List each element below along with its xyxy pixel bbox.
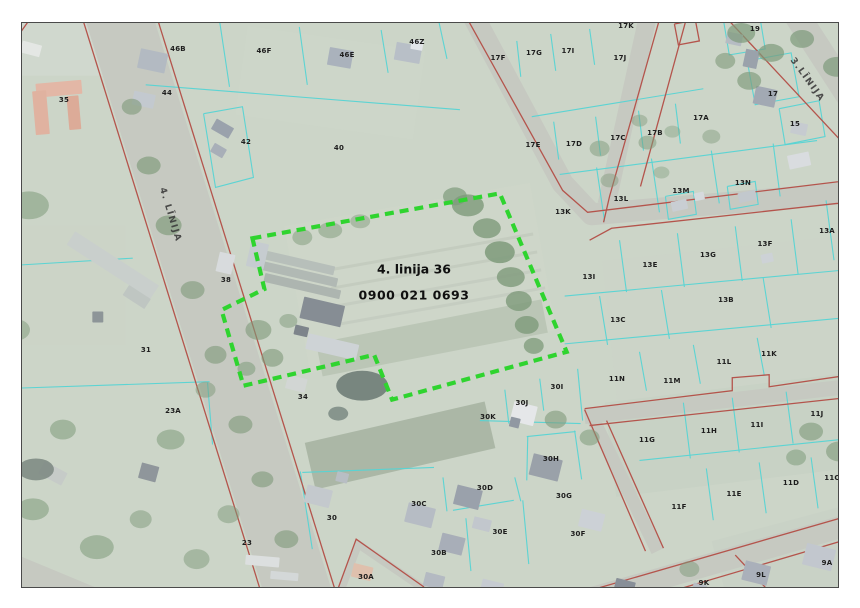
parcel-label-9A: 9A	[822, 559, 833, 567]
parcel-label-42: 42	[241, 138, 251, 146]
parcel-label-46B: 46B	[170, 45, 186, 53]
cadastral-map-frame: 4. linija 36 0900 021 0693 46B46F46E46Z4…	[21, 22, 839, 588]
parcel-label-17F: 17F	[490, 54, 505, 62]
parcel-label-11J: 11J	[811, 410, 824, 418]
parcel-label-11K: 11K	[761, 350, 777, 358]
parcel-label-15: 15	[790, 120, 800, 128]
parcel-label-46E: 46E	[339, 51, 354, 59]
parcel-label-9L: 9L	[756, 571, 766, 579]
parcel-label-19: 19	[750, 25, 760, 33]
page: 4. linija 36 0900 021 0693 46B46F46E46Z4…	[0, 0, 860, 608]
parcel-label-23: 23	[242, 539, 252, 547]
parcel-label-44: 44	[162, 89, 172, 97]
parcel-label-23A: 23A	[165, 407, 181, 415]
parcel-label-13M: 13M	[672, 187, 689, 195]
parcel-label-34: 34	[298, 393, 308, 401]
parcel-label-31: 31	[141, 346, 151, 354]
parcel-label-17G: 17G	[526, 49, 542, 57]
parcel-label-40: 40	[334, 144, 344, 152]
parcel-label-11C: 11C	[824, 474, 839, 482]
road-label: 4. LĪNIJA	[157, 186, 183, 243]
map-label-layer: 4. linija 36 0900 021 0693 46B46F46E46Z4…	[22, 23, 838, 587]
parcel-label-13K: 13K	[555, 208, 571, 216]
parcel-label-13F: 13F	[757, 240, 772, 248]
parcel-label-17E: 17E	[525, 141, 540, 149]
parcel-label-46Z: 46Z	[409, 38, 424, 46]
road-label: 3.LĪNIJA	[788, 56, 827, 104]
parcel-label-17C: 17C	[610, 134, 625, 142]
parcel-label-13G: 13G	[700, 251, 716, 259]
parcel-label-30D: 30D	[477, 484, 493, 492]
highlight-parcel-label: 4. linija 36 0900 021 0693	[359, 262, 470, 303]
parcel-label-11F: 11F	[671, 503, 686, 511]
parcel-label-13A: 13A	[819, 227, 835, 235]
parcel-label-46F: 46F	[256, 47, 271, 55]
parcel-label-35: 35	[59, 96, 69, 104]
parcel-label-13B: 13B	[718, 296, 734, 304]
parcel-label-30E: 30E	[492, 528, 507, 536]
parcel-label-17K: 17K	[618, 22, 634, 30]
parcel-label-30I: 30I	[551, 383, 564, 391]
parcel-label-30K: 30K	[480, 413, 496, 421]
parcel-label-13C: 13C	[610, 316, 625, 324]
parcel-label-30H: 30H	[543, 455, 559, 463]
parcel-label-30J: 30J	[516, 399, 529, 407]
parcel-label-17A: 17A	[693, 114, 709, 122]
parcel-label-13L: 13L	[614, 195, 629, 203]
parcel-label-17J: 17J	[614, 54, 627, 62]
parcel-label-17D: 17D	[566, 140, 582, 148]
parcel-label-13N: 13N	[735, 179, 751, 187]
parcel-label-30C: 30C	[411, 500, 426, 508]
parcel-label-11H: 11H	[701, 427, 717, 435]
parcel-label-11I: 11I	[751, 421, 764, 429]
parcel-label-13I: 13I	[583, 273, 596, 281]
parcel-label-13E: 13E	[642, 261, 657, 269]
parcel-label-17I: 17I	[562, 47, 575, 55]
parcel-label-30B: 30B	[431, 549, 447, 557]
parcel-label-11M: 11M	[663, 377, 680, 385]
highlight-parcel-address: 4. linija 36	[359, 262, 470, 277]
parcel-label-11L: 11L	[717, 358, 732, 366]
parcel-label-30F: 30F	[570, 530, 585, 538]
parcel-label-38: 38	[221, 276, 231, 284]
parcel-label-11G: 11G	[639, 436, 655, 444]
parcel-label-11D: 11D	[783, 479, 799, 487]
parcel-label-30G: 30G	[556, 492, 572, 500]
parcel-label-30A: 30A	[358, 573, 374, 581]
parcel-label-11N: 11N	[609, 375, 625, 383]
parcel-label-30: 30	[327, 514, 337, 522]
parcel-label-17B: 17B	[647, 129, 663, 137]
parcel-label-9K: 9K	[699, 579, 710, 587]
highlight-parcel-cadastral-number: 0900 021 0693	[359, 288, 470, 303]
parcel-label-17: 17	[768, 90, 778, 98]
parcel-label-11E: 11E	[726, 490, 741, 498]
